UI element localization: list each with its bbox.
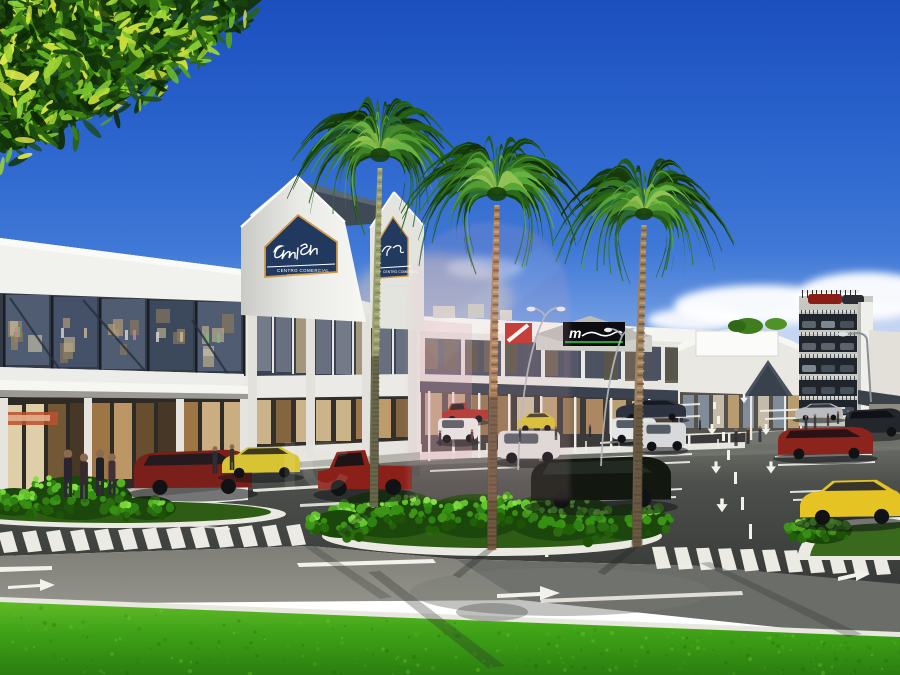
svg-text:m: m (569, 325, 581, 341)
svg-text:en el Corredor Sur: en el Corredor Sur (287, 273, 316, 277)
svg-text:en el Corredor: en el Corredor (386, 284, 409, 288)
svg-text:IC: IC (280, 427, 350, 505)
